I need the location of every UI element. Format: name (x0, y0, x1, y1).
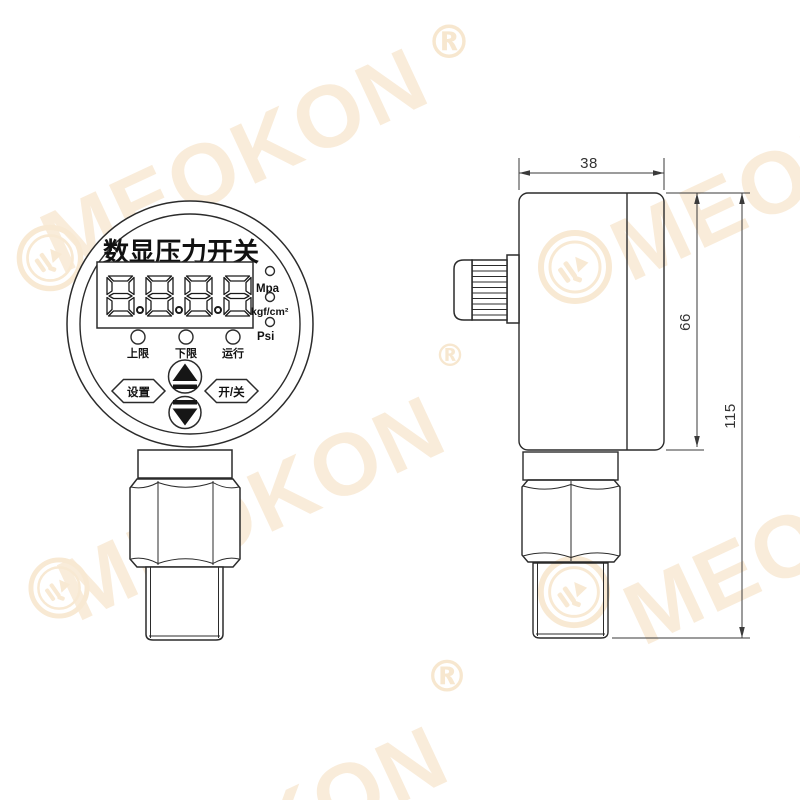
cable-gland (454, 255, 519, 323)
gland-cap (454, 260, 472, 320)
gland-ribbed-section (472, 260, 507, 320)
up-button (169, 360, 202, 393)
dimension-total-height: 115 (612, 193, 750, 638)
front-thread-stud (146, 567, 223, 640)
pressure-switch-technical-drawing: MEOKON MEOKON MEOKON MEOKON MEOKON ® ® ® (0, 0, 800, 800)
dimension-total-height-value: 115 (722, 403, 739, 428)
front-hex-nut (130, 479, 240, 567)
drawing-svg: 数显压力开关 Mpa kgf/cm² Psi 上限 下限 运行 (0, 0, 800, 800)
unit-label-kgfcm2: kgf/cm² (251, 306, 289, 318)
side-body (519, 193, 664, 450)
side-fitting (522, 452, 620, 638)
front-view: 数显压力开关 Mpa kgf/cm² Psi 上限 下限 运行 (67, 201, 313, 640)
gland-base (507, 255, 519, 323)
down-button (169, 397, 201, 429)
front-collar (138, 450, 232, 478)
dimension-width: 38 (519, 155, 664, 190)
side-hex-nut (522, 480, 620, 562)
unit-label-psi: Psi (257, 331, 274, 343)
side-collar (523, 452, 618, 480)
dimension-width-value: 38 (580, 155, 598, 172)
dimension-body-height-value: 66 (677, 313, 694, 331)
front-fitting (130, 450, 240, 640)
status-label-run: 运行 (222, 346, 244, 360)
set-button-label: 设置 (127, 385, 150, 399)
status-label-lower: 下限 (175, 346, 197, 360)
side-thread-stud (533, 563, 608, 638)
status-label-upper: 上限 (127, 346, 149, 360)
side-view: 38 66 115 (454, 155, 750, 638)
power-button-label: 开/关 (218, 385, 245, 399)
